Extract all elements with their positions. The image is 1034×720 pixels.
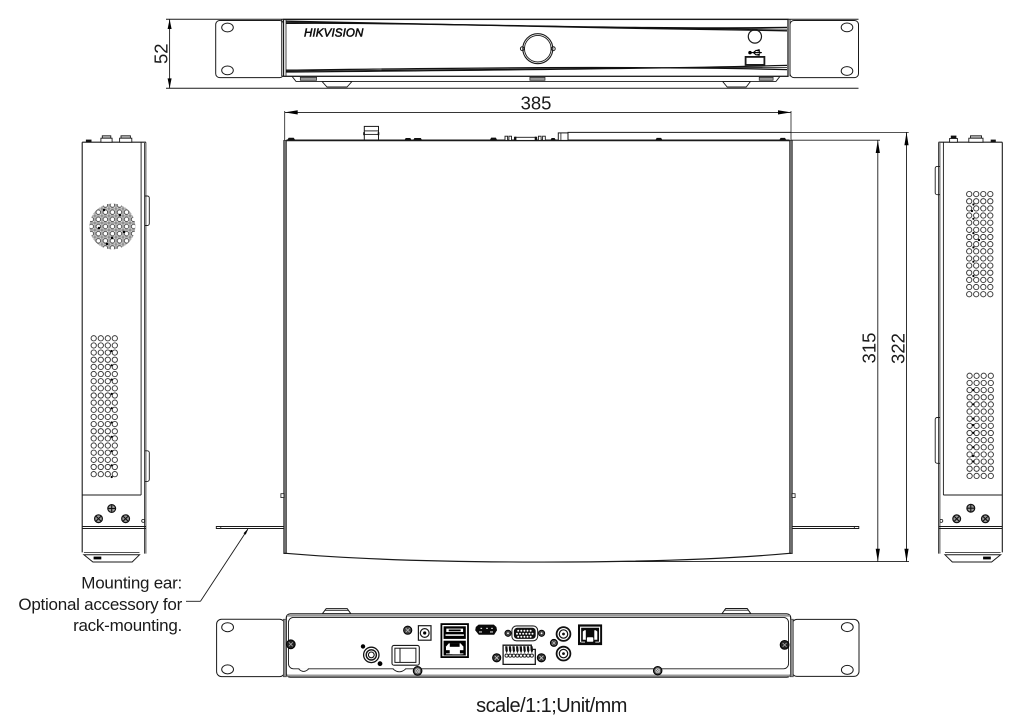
svg-text:385: 385 [521, 93, 552, 114]
svg-text:scale/1:1;Unit/mm: scale/1:1;Unit/mm [476, 695, 627, 717]
svg-text:52: 52 [151, 43, 172, 64]
svg-text:322: 322 [888, 333, 909, 364]
svg-text:HIKVISION: HIKVISION [304, 27, 364, 40]
svg-text:Mounting ear:: Mounting ear: [81, 574, 182, 593]
svg-text:315: 315 [859, 333, 880, 364]
svg-text:rack-mounting.: rack-mounting. [73, 616, 182, 635]
svg-text:Optional accessory for: Optional accessory for [18, 595, 182, 614]
